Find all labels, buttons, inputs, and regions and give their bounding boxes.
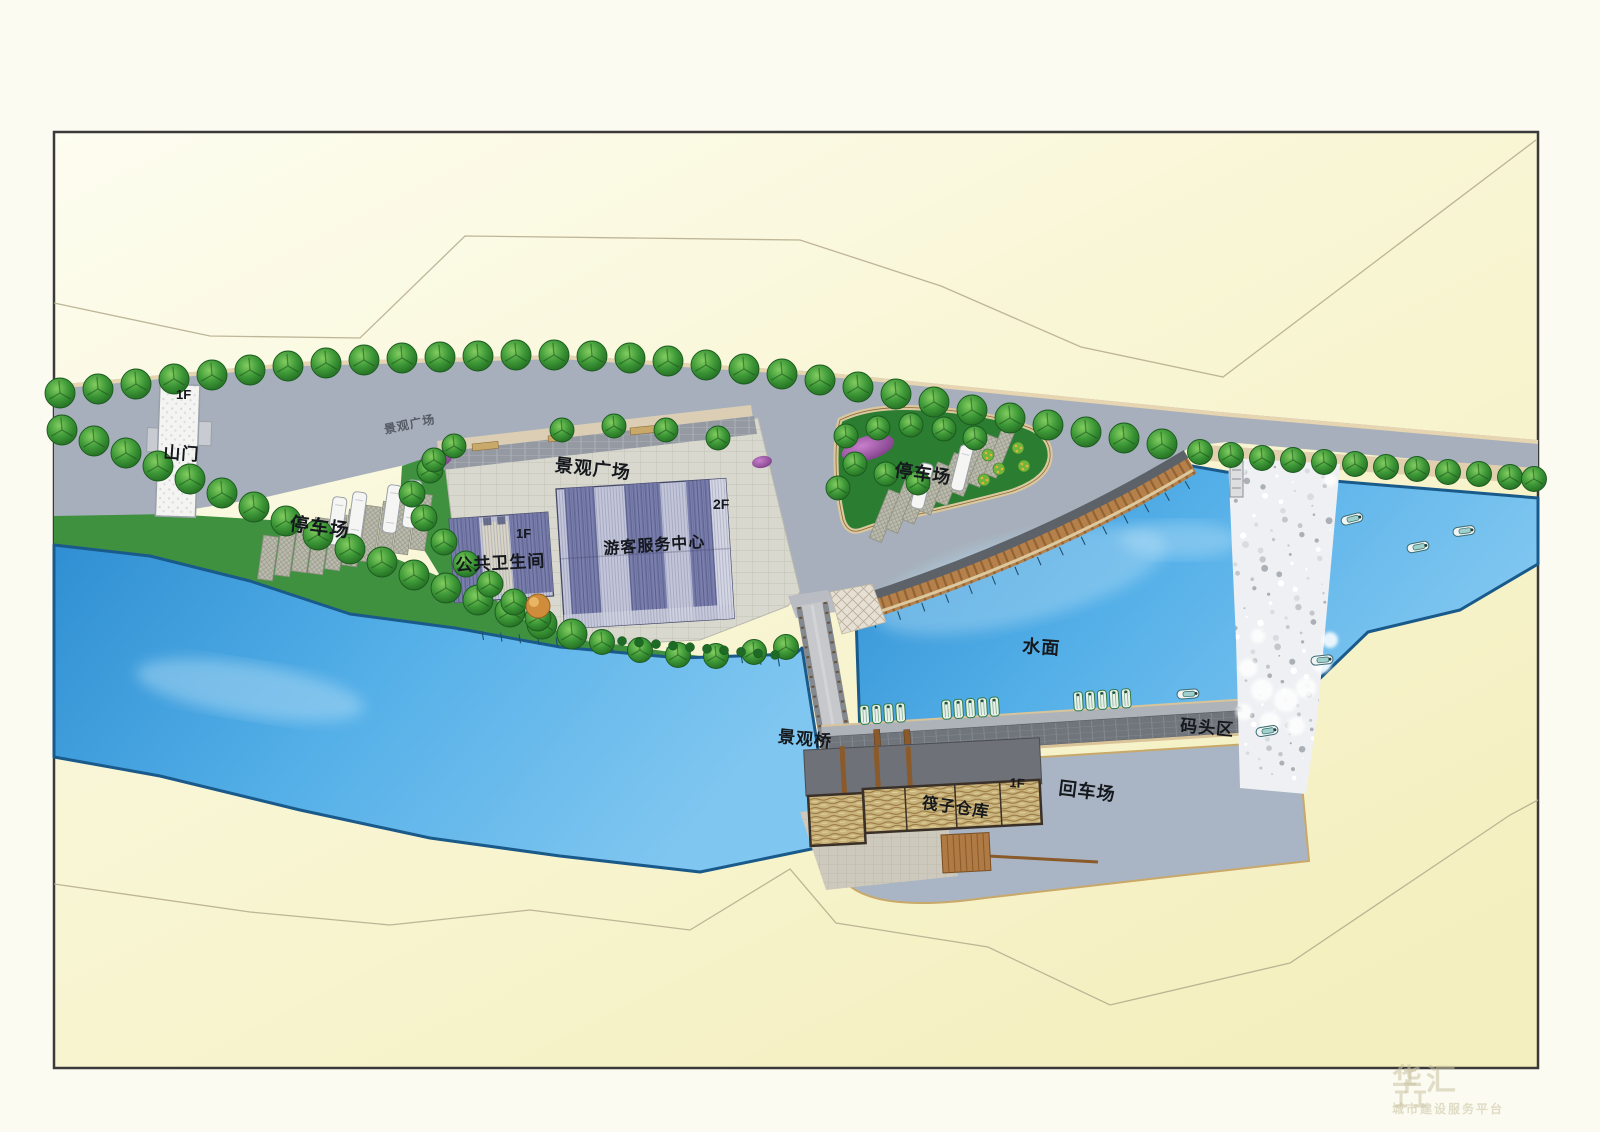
tree — [654, 418, 678, 442]
tree — [47, 415, 77, 445]
raft — [965, 698, 975, 718]
tree — [1498, 465, 1523, 490]
flower-bush — [982, 449, 994, 461]
flower-bush — [978, 474, 990, 486]
tree — [431, 529, 457, 555]
tree — [963, 426, 987, 450]
tree — [1467, 462, 1492, 487]
tree — [45, 378, 75, 408]
boat — [1311, 654, 1334, 665]
tree — [239, 492, 269, 522]
tree — [83, 374, 113, 404]
tree — [442, 434, 466, 458]
raft — [896, 703, 906, 723]
tree — [197, 360, 227, 390]
tree — [235, 355, 265, 385]
tree — [431, 573, 461, 603]
shrub — [720, 646, 729, 655]
tree — [1250, 446, 1275, 471]
flower-bush — [993, 463, 1005, 475]
tree — [834, 424, 858, 448]
tree — [422, 448, 446, 472]
tree — [881, 379, 911, 409]
dock-label: 码头区 — [1180, 717, 1235, 739]
tree — [805, 365, 835, 395]
site-plan: 1F 山门 停车场 景观广场 景观广场 1F 公共卫生间 2F 游客服务中心 停… — [0, 0, 1600, 1132]
tree — [826, 476, 850, 500]
tree — [463, 341, 493, 371]
tree — [1405, 457, 1430, 482]
tree — [899, 413, 923, 437]
raft — [953, 699, 963, 719]
tree — [425, 342, 455, 372]
tree — [411, 505, 437, 531]
warehouse-floor-label: 1F — [1009, 776, 1025, 790]
tree — [387, 343, 417, 373]
tree — [1374, 455, 1399, 480]
flower-bush — [1012, 442, 1024, 454]
tree — [1436, 460, 1461, 485]
tree — [175, 464, 205, 494]
tree — [399, 560, 429, 590]
tree — [590, 630, 615, 655]
tree — [615, 343, 645, 373]
shrub — [771, 650, 780, 659]
shrub — [754, 649, 763, 658]
restroom-label: 公共卫生间 — [455, 552, 546, 574]
raft — [884, 704, 894, 724]
tree — [1071, 417, 1101, 447]
tree — [1147, 429, 1177, 459]
tree — [539, 340, 569, 370]
shrub — [618, 637, 627, 646]
tree — [501, 340, 531, 370]
flower-bush — [1018, 460, 1030, 472]
tree — [1188, 440, 1213, 465]
tree — [1312, 450, 1337, 475]
raft — [1085, 691, 1095, 711]
tree — [1109, 423, 1139, 453]
tree — [273, 351, 303, 381]
gate-label: 山门 — [163, 444, 200, 463]
tree — [349, 345, 379, 375]
tree — [1219, 443, 1244, 468]
raft — [941, 700, 951, 720]
tree — [1343, 452, 1368, 477]
tree — [767, 359, 797, 389]
shrub — [737, 647, 746, 656]
boat — [1177, 689, 1200, 700]
raft — [1097, 690, 1107, 710]
visitor-center-floor-label: 2F — [713, 497, 729, 511]
shrub — [635, 638, 644, 647]
tree — [121, 369, 151, 399]
tree — [1033, 410, 1063, 440]
tree — [843, 372, 873, 402]
gate-floor-label: 1F — [176, 388, 191, 401]
raft — [1121, 689, 1131, 709]
tree — [602, 414, 626, 438]
shrub — [652, 640, 661, 649]
shrub — [686, 643, 695, 652]
tree — [691, 350, 721, 380]
tree — [501, 589, 527, 615]
tree — [653, 346, 683, 376]
tree — [207, 478, 237, 508]
watermark-logo — [1392, 1066, 1434, 1118]
tree — [577, 341, 607, 371]
tree — [399, 481, 425, 507]
tree — [550, 418, 574, 442]
tree — [1522, 467, 1547, 492]
autumn-tree — [526, 594, 550, 618]
site-plan-canvas — [0, 0, 1600, 1132]
raft — [860, 705, 870, 725]
shrub — [669, 641, 678, 650]
tree — [995, 403, 1025, 433]
watermark: 华汇 城市建设服务平台 — [1392, 1066, 1600, 1126]
tree — [919, 387, 949, 417]
tree — [367, 547, 397, 577]
shrub — [703, 644, 712, 653]
water-label: 水面 — [1022, 637, 1061, 658]
tree — [706, 426, 730, 450]
tree — [557, 619, 587, 649]
tree — [932, 417, 956, 441]
tree — [111, 438, 141, 468]
tree — [866, 416, 890, 440]
tree — [311, 348, 341, 378]
raft — [977, 698, 987, 718]
wooden-deck — [941, 832, 991, 872]
raft — [1109, 689, 1119, 709]
tree — [79, 426, 109, 456]
raft — [1073, 692, 1083, 712]
restroom-floor-label: 1F — [516, 527, 531, 540]
tree — [729, 354, 759, 384]
tree — [1281, 448, 1306, 473]
raft — [989, 697, 999, 717]
raft — [872, 704, 882, 724]
tree — [957, 395, 987, 425]
tree — [843, 452, 867, 476]
tree — [477, 571, 503, 597]
